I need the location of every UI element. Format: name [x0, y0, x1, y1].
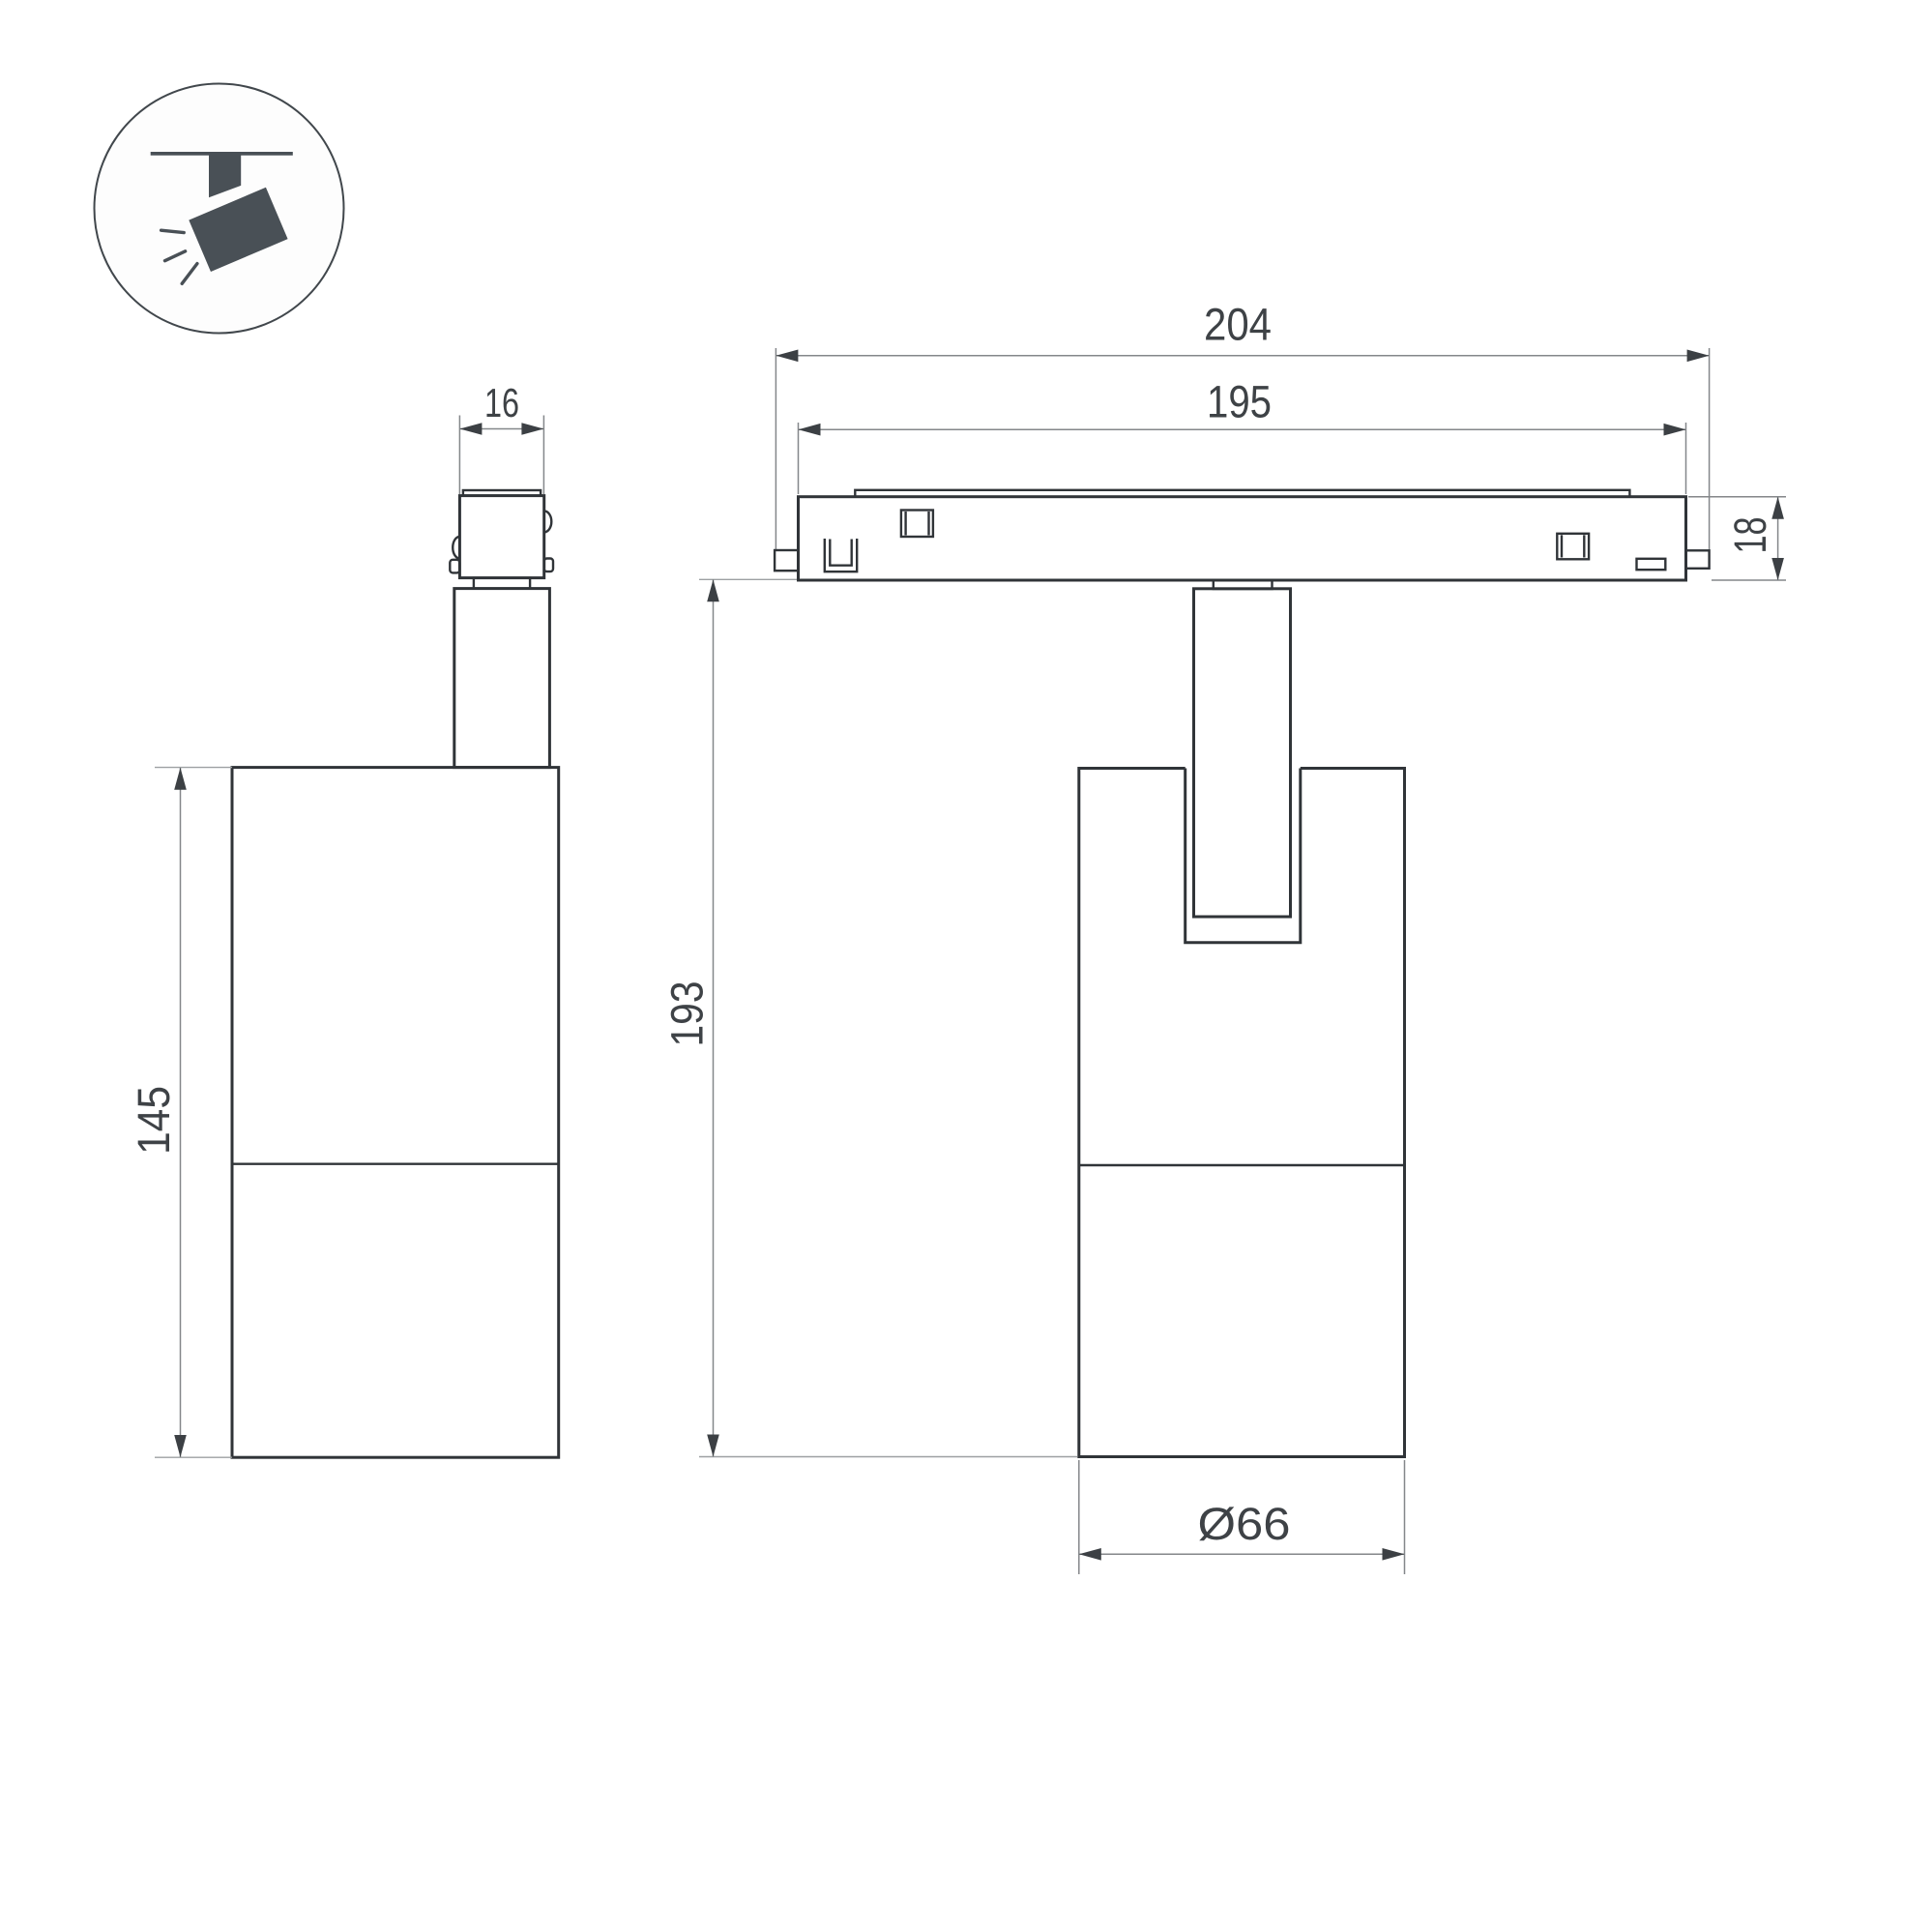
svg-text:145: 145 — [128, 1086, 179, 1155]
svg-text:Ø66: Ø66 — [1198, 1498, 1291, 1549]
svg-text:18: 18 — [1724, 517, 1775, 554]
svg-text:16: 16 — [484, 380, 519, 425]
svg-text:195: 195 — [1207, 376, 1272, 427]
svg-text:204: 204 — [1204, 299, 1272, 350]
svg-text:193: 193 — [661, 981, 713, 1047]
